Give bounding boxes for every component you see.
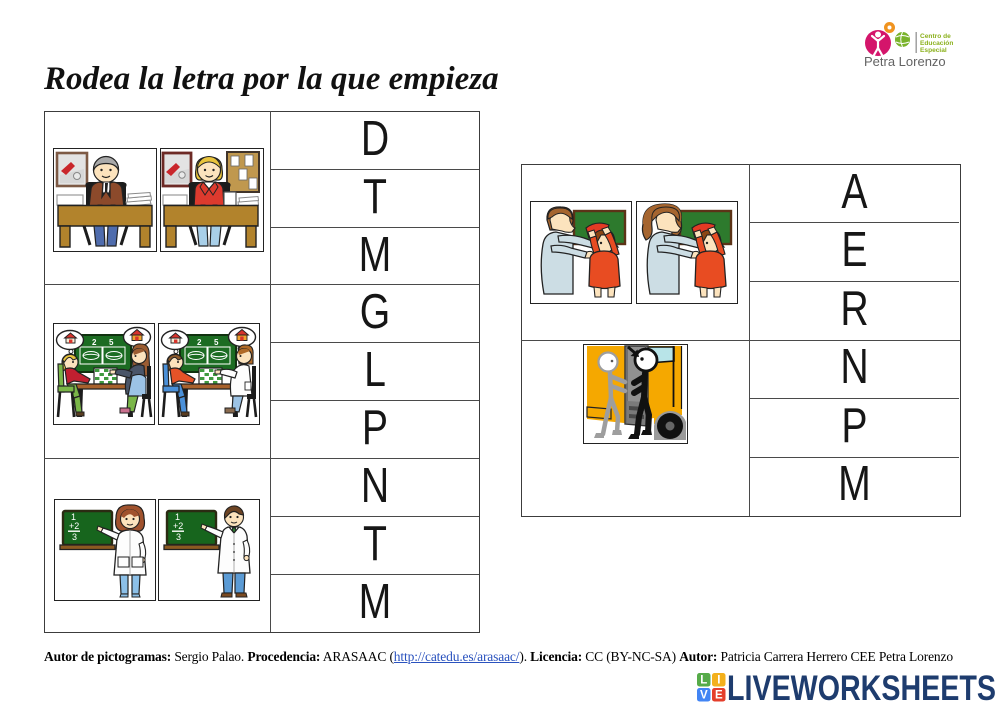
svg-text:E: E: [715, 690, 723, 702]
svg-text:2: 2: [92, 338, 97, 347]
svg-text:5: 5: [109, 338, 114, 347]
svg-text:L: L: [700, 675, 707, 687]
svg-text:Petra Lorenzo: Petra Lorenzo: [864, 54, 946, 69]
svg-text:I: I: [717, 675, 720, 687]
svg-text:Educación: Educación: [920, 40, 953, 47]
svg-text:+2: +2: [173, 521, 183, 531]
svg-text:Centro de: Centro de: [920, 33, 951, 40]
svg-text:+2: +2: [69, 521, 79, 531]
svg-text:Especial: Especial: [920, 47, 947, 54]
svg-text:3: 3: [176, 532, 181, 542]
svg-text:LIVEWORKSHEETS: LIVEWORKSHEETS: [727, 671, 996, 705]
svg-text:V: V: [700, 690, 708, 702]
svg-text:3: 3: [72, 532, 77, 542]
svg-text:2: 2: [197, 338, 202, 347]
svg-text:5: 5: [214, 338, 219, 347]
